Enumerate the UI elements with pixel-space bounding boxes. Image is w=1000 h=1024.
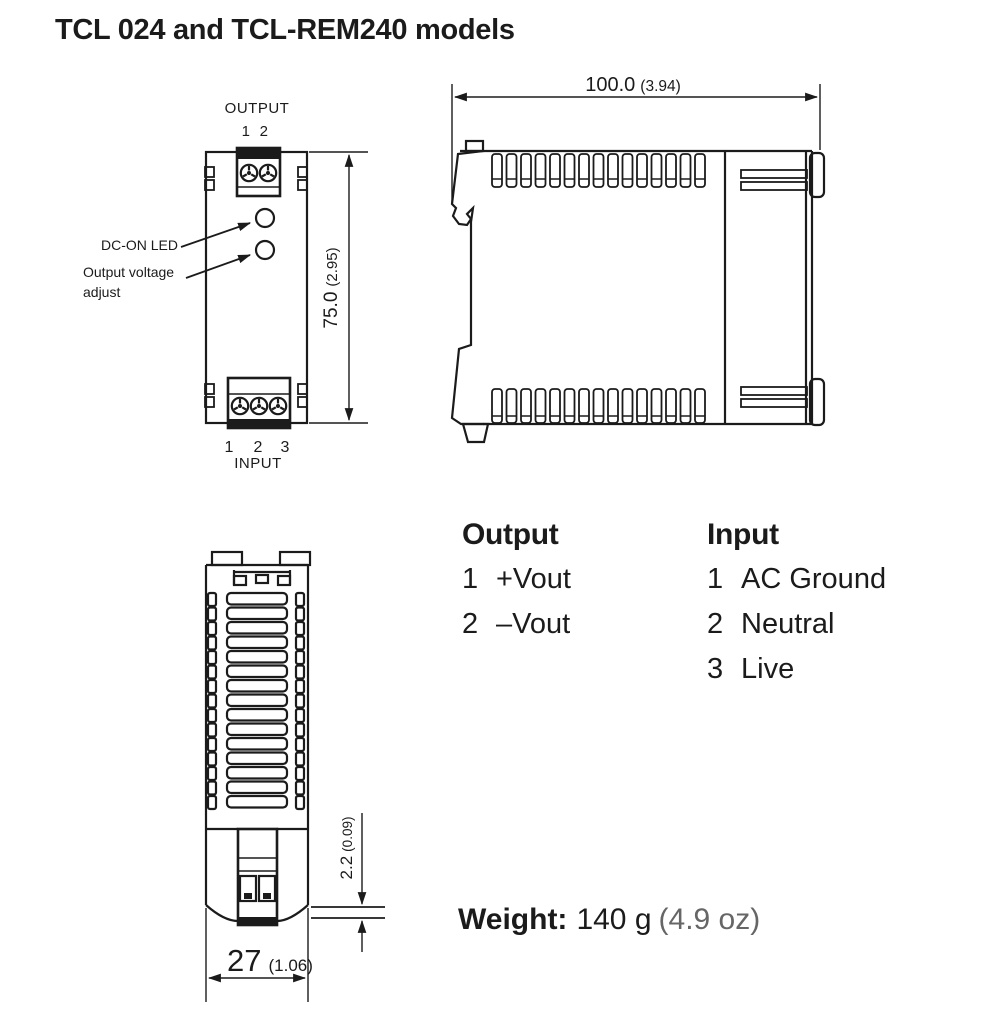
din-clip-foot — [463, 424, 488, 442]
adjust-pointer-arrow — [186, 255, 250, 278]
dc-on-led-label: DC-ON LED — [101, 237, 178, 253]
input-pin2-label: 2 — [254, 439, 263, 456]
output-pin1-label: 1 — [242, 123, 251, 140]
input-screw-2 — [251, 398, 267, 414]
height-dimension-label: 75.0(2.95) — [321, 247, 342, 328]
input-legend-heading: Input — [707, 519, 886, 551]
pin-number: 1 — [707, 565, 741, 594]
pin-label: Neutral — [741, 610, 835, 639]
height-dimension: 75.0(2.95) — [309, 152, 368, 423]
legend-row: 3 Live — [707, 655, 886, 684]
led-pointer-arrow — [181, 223, 250, 247]
front-side-clips — [205, 167, 307, 407]
pin-label: Live — [741, 655, 794, 684]
depth-dimension-label: 27(1.06) — [227, 943, 313, 978]
top-view-tab-right — [280, 552, 310, 565]
dc-on-led — [256, 209, 274, 227]
top-view-terminal — [206, 829, 308, 925]
weight-ounces: (4.9 oz) — [659, 903, 761, 936]
input-screw-1 — [232, 398, 248, 414]
weight-line: Weight:140 g(4.9 oz) — [458, 903, 760, 937]
adjust-label-line2: adjust — [83, 284, 120, 300]
weight-grams: 140 g — [576, 903, 651, 936]
input-pin1-label: 1 — [225, 439, 234, 456]
input-label: INPUT — [234, 455, 282, 472]
front-body — [206, 152, 307, 423]
adjust-label-line1: Output voltage — [83, 264, 174, 280]
pin-number: 3 — [707, 655, 741, 684]
top-view-tab-left — [212, 552, 242, 565]
pin-label: AC Ground — [741, 565, 886, 594]
legend-row: 2 –Vout — [462, 610, 571, 639]
output-screw-1 — [241, 165, 257, 181]
top-view-left-vents — [208, 593, 216, 809]
output-legend: Output 1 +Vout 2 –Vout — [462, 519, 571, 655]
side-view: 100.0(3.94) — [452, 74, 824, 442]
output-pin2-label: 2 — [260, 123, 269, 140]
legend-row: 1 +Vout — [462, 565, 571, 594]
side-bottom-vents — [492, 389, 705, 423]
pin-label: +Vout — [496, 565, 571, 594]
weight-label: Weight: — [458, 903, 567, 936]
input-screw-3 — [270, 398, 286, 414]
top-view-right-vents — [296, 593, 304, 809]
top-view: 2.2(0.09) 27(1.06) — [206, 552, 385, 1002]
output-screw-2 — [260, 165, 276, 181]
protrusion-dimension-label: 2.2(0.09) — [337, 817, 356, 880]
voltage-adjust-pot — [256, 241, 274, 259]
front-view: 75.0(2.95) OUTPUT 1 2 DC-ON LED Output v… — [83, 100, 368, 472]
legend-row: 2 Neutral — [707, 610, 886, 639]
input-pin3-label: 3 — [281, 439, 290, 456]
output-legend-heading: Output — [462, 519, 571, 551]
din-rail-clip — [452, 151, 484, 424]
output-terminal-block — [237, 148, 280, 196]
top-view-clip-bracket — [234, 570, 290, 585]
top-tab — [466, 141, 483, 151]
datasheet-page: TCL 024 and TCL-REM240 models — [0, 0, 1000, 1024]
pin-number: 2 — [707, 610, 741, 639]
side-right-slots — [741, 170, 807, 407]
legend-row: 1 AC Ground — [707, 565, 886, 594]
side-top-vents — [492, 154, 705, 187]
protrusion-dimension: 2.2(0.09) — [311, 813, 385, 952]
top-view-center-vents — [227, 593, 287, 808]
pin-number: 2 — [462, 610, 496, 639]
width-dimension-label: 100.0(3.94) — [585, 74, 681, 96]
mechanical-drawing: 75.0(2.95) OUTPUT 1 2 DC-ON LED Output v… — [0, 0, 1000, 1024]
pin-label: –Vout — [496, 610, 570, 639]
pin-number: 1 — [462, 565, 496, 594]
input-legend: Input 1 AC Ground 2 Neutral 3 Live — [707, 519, 886, 700]
output-label: OUTPUT — [225, 100, 290, 117]
input-terminal-block — [228, 378, 290, 428]
